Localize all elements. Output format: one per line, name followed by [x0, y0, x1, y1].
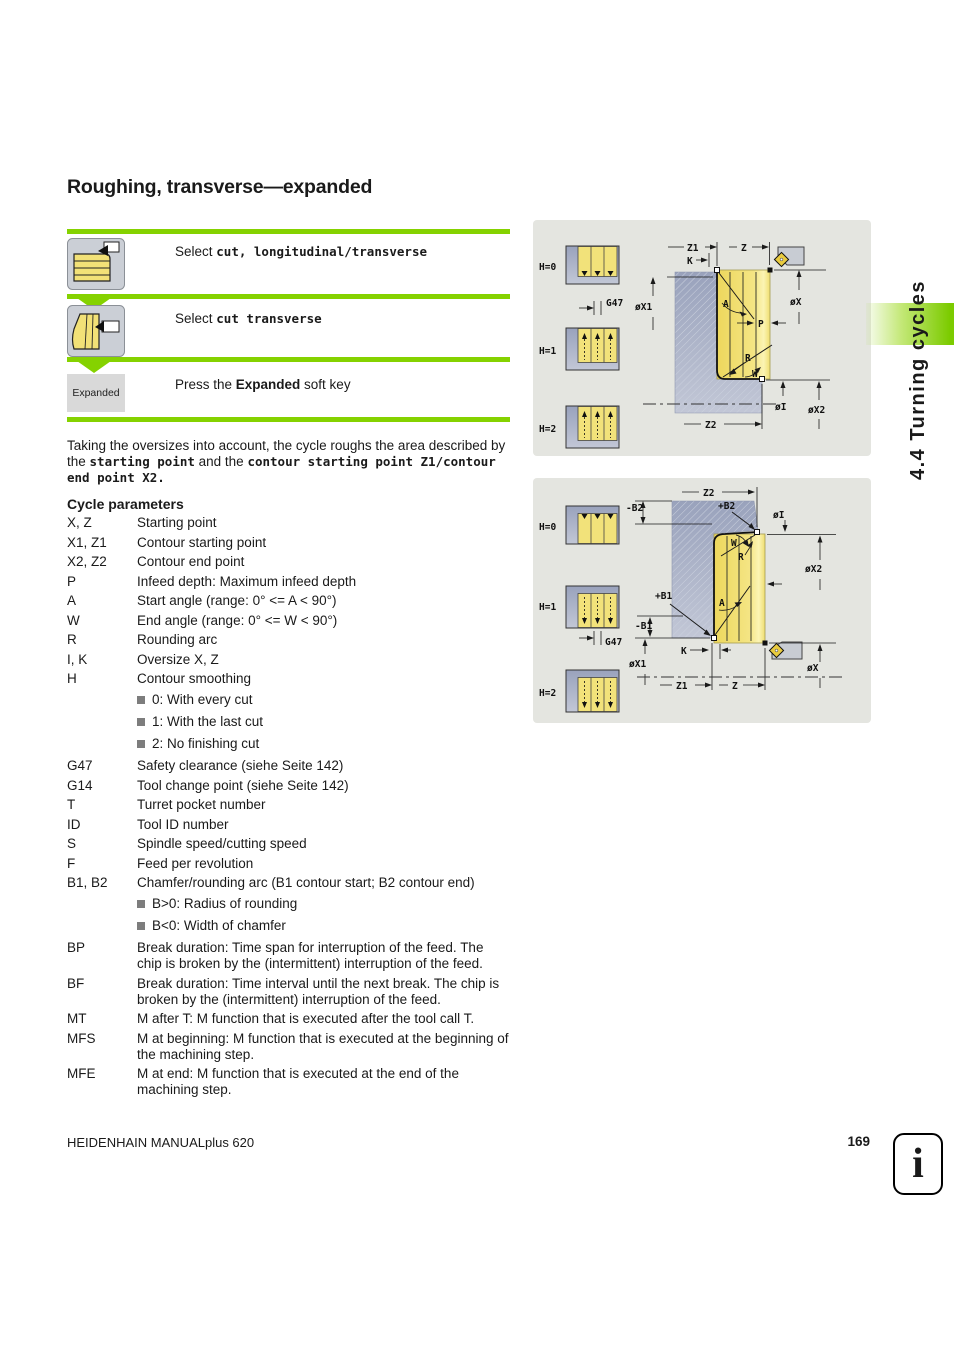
fig2-label-ox1: øX1 [629, 659, 646, 670]
step3-bold: Expanded [236, 377, 301, 392]
parameter-row: HContour smoothing [67, 671, 510, 687]
fig1-label-h0: H=0 [539, 262, 556, 273]
parameter-row: X, ZStarting point [67, 515, 510, 531]
fig2-inset-h0 [566, 506, 619, 544]
parameter-description: Feed per revolution [137, 856, 510, 872]
footer-manual-name: HEIDENHAIN MANUALplus 620 [67, 1135, 254, 1150]
fig1-label-h1: H=1 [539, 346, 556, 357]
parameter-bullet: 2: No finishing cut [67, 736, 510, 752]
parameter-description: Contour end point [137, 554, 510, 570]
parameter-description: Contour starting point [137, 535, 510, 551]
parameter-row: IDTool ID number [67, 817, 510, 833]
fig2-inset-h1 [566, 586, 619, 628]
parameter-description: Oversize X, Z [137, 652, 510, 668]
parameter-label: A [67, 593, 137, 609]
bullet-square-icon [137, 922, 145, 930]
steps-block: Select cut, longitudinal/transverse Sele… [67, 229, 510, 429]
fig1-label-h2: H=2 [539, 424, 556, 435]
parameter-row: MTM after T: M function that is executed… [67, 1011, 510, 1027]
divider [67, 294, 510, 299]
step1-code: cut, longitudinal/transverse [216, 244, 427, 259]
parameter-label: MFS [67, 1031, 137, 1063]
parameter-row: WEnd angle (range: 0° <= W < 90°) [67, 613, 510, 629]
fig2-label-w: W [731, 538, 737, 549]
parameter-label: X, Z [67, 515, 137, 531]
bullet-square-icon [137, 696, 145, 704]
parameter-row: G14Tool change point (siehe Seite 142) [67, 778, 510, 794]
parameter-description: Spindle speed/cutting speed [137, 836, 510, 852]
bullet-square-icon [137, 718, 145, 726]
parameter-row: X1, Z1Contour starting point [67, 535, 510, 551]
fig1-label-ox: øX [790, 297, 802, 308]
fig1-contour-start-marker [715, 268, 720, 273]
fig2-label-ox2: øX2 [805, 564, 822, 575]
parameter-row: BPBreak duration: Time span for interrup… [67, 940, 510, 972]
parameter-row: B1, B2Chamfer/rounding arc (B1 contour s… [67, 875, 510, 891]
flow-arrow-icon [77, 361, 111, 373]
diagram-roughing-transverse-1: H=0 G47 H=1 H=2 [533, 220, 871, 456]
fig2-label-ox: øX [807, 663, 819, 674]
fig2-label-b2-minus: -B2 [626, 503, 643, 514]
parameter-description: M at end: M function that is executed at… [137, 1066, 510, 1098]
fig2-label-z: Z [732, 681, 738, 692]
parameter-rows: X, ZStarting pointX1, Z1Contour starting… [67, 515, 510, 1102]
parameter-label: G47 [67, 758, 137, 774]
fig2-label-z2: Z2 [703, 488, 714, 499]
parameter-label: I, K [67, 652, 137, 668]
fig2-label-oi: øI [773, 510, 784, 521]
page-number: 169 [800, 1134, 870, 1149]
parameter-label: BF [67, 976, 137, 1008]
parameter-description: Chamfer/rounding arc (B1 contour start; … [137, 875, 510, 891]
bullet-text: B<0: Width of chamfer [152, 918, 286, 934]
parameter-description: Rounding arc [137, 632, 510, 648]
fig1-tool-icon [774, 247, 804, 267]
fig1-label-a: A [723, 299, 729, 310]
info-glyph: i [912, 1143, 924, 1185]
fig1-label-z: Z [741, 243, 747, 254]
parameter-row: MFSM at beginning: M function that is ex… [67, 1031, 510, 1063]
divider [67, 229, 510, 234]
parameter-description: Infeed depth: Maximum infeed depth [137, 574, 510, 590]
parameter-label: ID [67, 817, 137, 833]
step2-text: Select cut transverse [175, 311, 322, 326]
fig1-label-ox2: øX2 [808, 405, 825, 416]
parameter-description: M at beginning: M function that is execu… [137, 1031, 510, 1063]
fig1-start-point-marker [768, 268, 773, 273]
chapter-title: 4.4 Turning cycles [907, 280, 930, 480]
fig2-label-g47: G47 [605, 637, 622, 648]
parameter-bullet: B>0: Radius of rounding [67, 896, 510, 912]
fig1-label-ox1: øX1 [635, 302, 652, 313]
manual-page: Roughing, transverse—expanded Select cut… [0, 0, 954, 1350]
parameter-label: MFE [67, 1066, 137, 1098]
parameter-description: End angle (range: 0° <= W < 90°) [137, 613, 510, 629]
bullet-square-icon [137, 740, 145, 748]
parameter-description: Tool change point (siehe Seite 142) [137, 778, 510, 794]
parameter-label: P [67, 574, 137, 590]
fig2-label-b1-minus: -B1 [635, 621, 652, 632]
parameter-row: TTurret pocket number [67, 797, 510, 813]
cut-longitudinal-transverse-icon [67, 238, 125, 290]
parameter-label: X2, Z2 [67, 554, 137, 570]
parameter-row: G47Safety clearance (siehe Seite 142) [67, 758, 510, 774]
intro-paragraph: Taking the oversizes into account, the c… [67, 438, 514, 486]
fig2-label-b1-plus: +B1 [655, 591, 672, 602]
parameter-description: Starting point [137, 515, 510, 531]
parameter-description: Break duration: Time interval until the … [137, 976, 510, 1008]
fig1-label-g47: G47 [606, 298, 623, 309]
fig1-label-w: W [752, 369, 758, 380]
parameter-row: I, KOversize X, Z [67, 652, 510, 668]
parameter-label: T [67, 797, 137, 813]
parameters-heading: Cycle parameters [67, 496, 184, 512]
parameter-label: BP [67, 940, 137, 972]
bullet-text: 1: With the last cut [152, 714, 263, 730]
parameter-description: Tool ID number [137, 817, 510, 833]
fig2-label-z1: Z1 [676, 681, 688, 692]
fig2-label-r: R [738, 552, 744, 563]
parameter-description: Start angle (range: 0° <= A < 90°) [137, 593, 510, 609]
fig1-inset-h1 [566, 328, 619, 370]
fig2-label-b2-plus: +B2 [718, 501, 735, 512]
step3-text: Press the Expanded soft key [175, 377, 351, 392]
parameter-description: Safety clearance (siehe Seite 142) [137, 758, 510, 774]
parameter-label: R [67, 632, 137, 648]
parameter-row: RRounding arc [67, 632, 510, 648]
info-icon: i [893, 1133, 943, 1195]
parameter-description: Contour smoothing [137, 671, 510, 687]
bullet-text: 2: No finishing cut [152, 736, 259, 752]
fig1-label-p: P [758, 319, 764, 330]
fig2-start-point-marker [763, 641, 768, 646]
parameter-row: PInfeed depth: Maximum infeed depth [67, 574, 510, 590]
divider [67, 417, 510, 422]
step2-code: cut transverse [216, 311, 321, 326]
parameter-row: AStart angle (range: 0° <= A < 90°) [67, 593, 510, 609]
fig1-label-z2: Z2 [705, 420, 716, 431]
parameter-row: FFeed per revolution [67, 856, 510, 872]
fig2-inset-h2 [566, 670, 619, 712]
parameter-row: X2, Z2Contour end point [67, 554, 510, 570]
parameter-label: X1, Z1 [67, 535, 137, 551]
parameter-label: W [67, 613, 137, 629]
bullet-text: B>0: Radius of rounding [152, 896, 297, 912]
fig2-label-h2: H=2 [539, 688, 556, 699]
page-title: Roughing, transverse—expanded [67, 176, 372, 199]
parameter-bullet: 0: With every cut [67, 692, 510, 708]
cut-transverse-icon [67, 305, 125, 357]
fig2-label-h0: H=0 [539, 522, 556, 533]
parameter-label: B1, B2 [67, 875, 137, 891]
fig2-contour-end-marker [712, 636, 717, 641]
diagram-roughing-transverse-2: H=0 H=1 G47 H=2 [533, 478, 871, 723]
fig1-inset-h2 [566, 406, 619, 448]
step1-text: Select cut, longitudinal/transverse [175, 244, 427, 259]
fig1-contour-end-marker [760, 377, 765, 382]
fig2-contour-start-marker [755, 530, 760, 535]
fig1-label-r: R [745, 353, 751, 364]
parameter-bullet: B<0: Width of chamfer [67, 918, 510, 934]
bullet-text: 0: With every cut [152, 692, 253, 708]
fig1-label-k: K [687, 256, 693, 267]
parameter-label: H [67, 671, 137, 687]
parameter-label: S [67, 836, 137, 852]
fig2-label-h1: H=1 [539, 602, 556, 613]
fig2-label-k: K [681, 646, 687, 657]
parameter-label: MT [67, 1011, 137, 1027]
parameter-label: G14 [67, 778, 137, 794]
fig1-label-oi: øI [775, 402, 786, 413]
parameter-label: F [67, 856, 137, 872]
bullet-square-icon [137, 900, 145, 908]
fig2-label-a: A [719, 598, 725, 609]
fig1-label-z1: Z1 [687, 243, 699, 254]
parameter-row: MFEM at end: M function that is executed… [67, 1066, 510, 1098]
divider [67, 357, 510, 362]
expanded-softkey: Expanded [67, 374, 125, 412]
parameter-row: BFBreak duration: Time interval until th… [67, 976, 510, 1008]
fig1-inset-h0 [566, 246, 619, 284]
parameter-bullet: 1: With the last cut [67, 714, 510, 730]
parameter-description: Turret pocket number [137, 797, 510, 813]
parameter-row: SSpindle speed/cutting speed [67, 836, 510, 852]
parameter-description: Break duration: Time span for interrupti… [137, 940, 510, 972]
intro-code-1: starting point [90, 454, 195, 469]
parameter-description: M after T: M function that is executed a… [137, 1011, 510, 1027]
